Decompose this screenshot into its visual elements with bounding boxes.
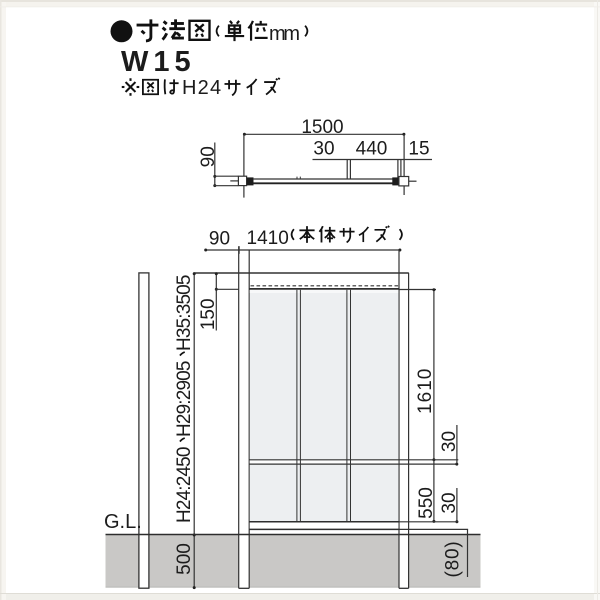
svg-text:W15: W15 (121, 46, 196, 78)
svg-text:30: 30 (313, 139, 334, 160)
svg-text:1410: 1410 (247, 228, 289, 249)
svg-text:90: 90 (209, 228, 230, 249)
svg-text:15: 15 (408, 139, 429, 160)
svg-text:G.L.: G.L. (104, 511, 142, 533)
svg-text:H29:2905: H29:2905 (174, 361, 195, 437)
svg-text:H24: H24 (182, 77, 222, 99)
svg-text:H24:2450: H24:2450 (174, 447, 195, 523)
svg-text:(80): (80) (443, 541, 464, 578)
svg-text:90: 90 (198, 146, 219, 167)
svg-text:H35:3505: H35:3505 (174, 275, 195, 351)
svg-text:500: 500 (174, 543, 195, 575)
svg-text:440: 440 (356, 139, 388, 160)
svg-text:1610: 1610 (415, 368, 436, 414)
svg-text:mm: mm (269, 23, 300, 45)
